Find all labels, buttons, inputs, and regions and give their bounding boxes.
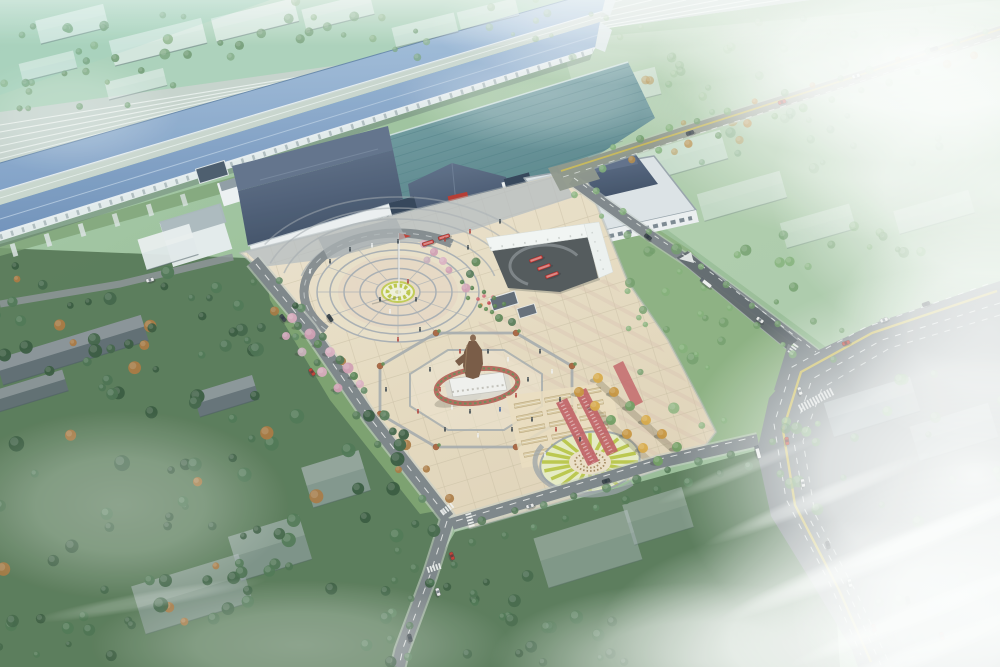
- scene-svg: [0, 0, 1000, 667]
- architectural-aerial-rendering: [0, 0, 1000, 667]
- layer-fog: [0, 0, 1000, 667]
